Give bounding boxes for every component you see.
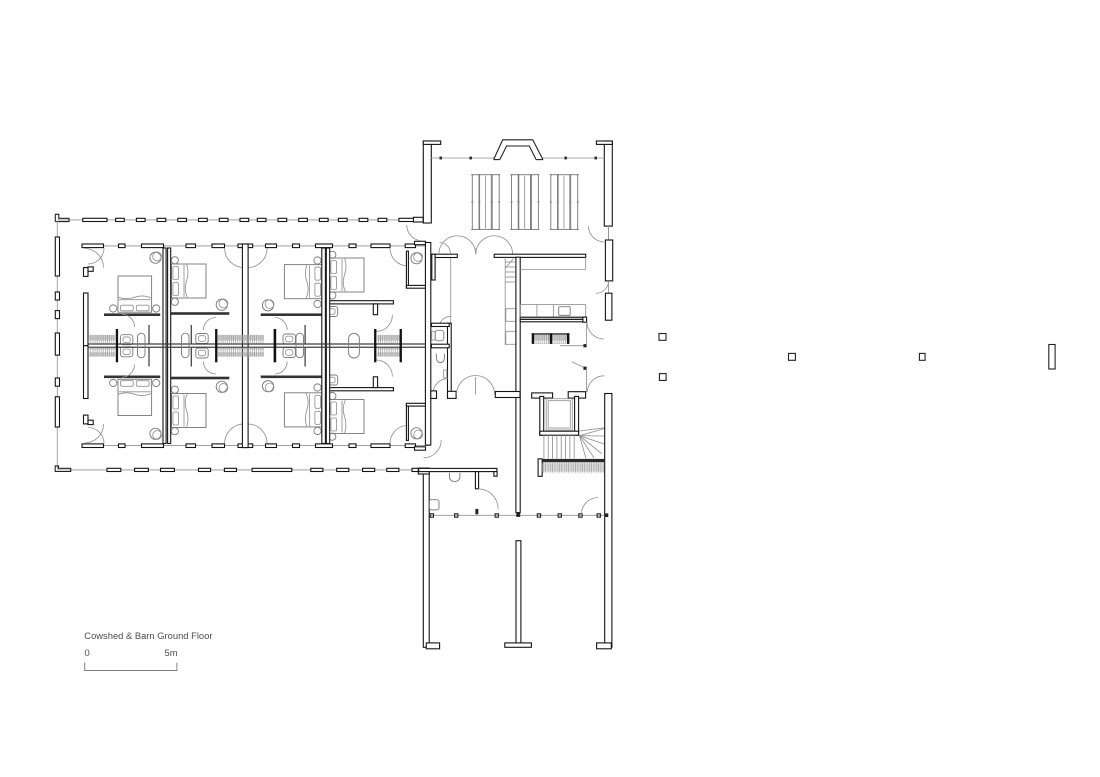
svg-text:0: 0 (85, 647, 90, 658)
svg-text:Cowshed & Barn Ground Floor: Cowshed & Barn Ground Floor (84, 630, 212, 641)
svg-text:5m: 5m (165, 647, 178, 658)
